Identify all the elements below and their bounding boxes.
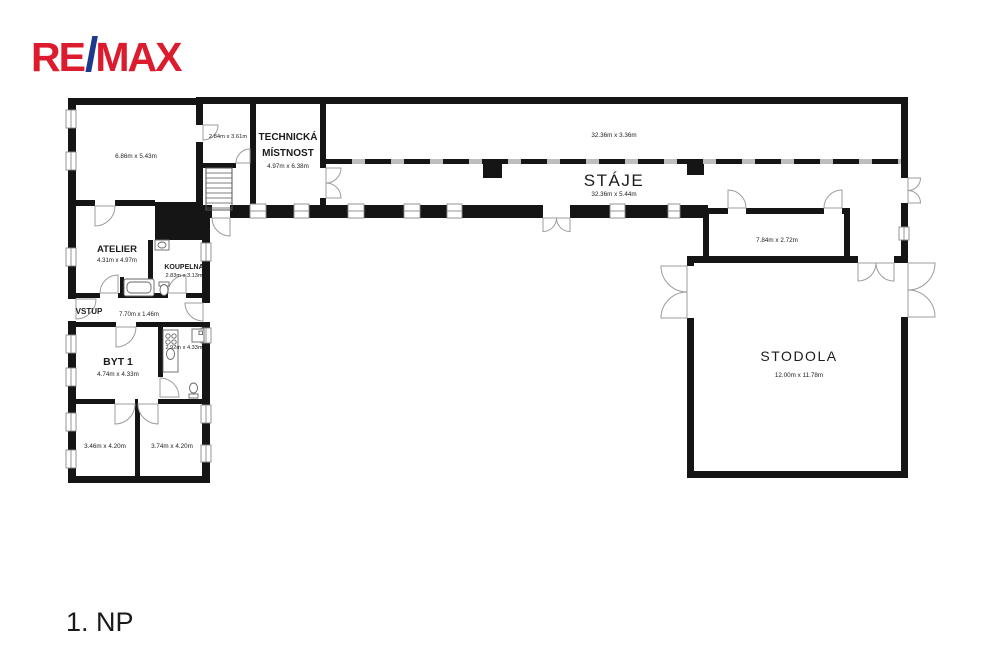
room-label-koupelna: KOUPELNA: [164, 264, 203, 271]
room-label-stodola: STODOLA: [760, 348, 837, 364]
toilet-icon: [189, 394, 198, 398]
room-284-dims: 2.84m x 3.61m: [209, 134, 248, 140]
room-label-atelier: ATELIER: [97, 244, 137, 255]
room-374-dims: 3.74m x 4.20m: [151, 443, 193, 450]
room-label-technicka-2: MÍSTNOST: [262, 146, 314, 159]
room-686-dims: 6.86m x 5.43m: [115, 153, 157, 160]
room-346-dims: 3.46m x 4.20m: [84, 443, 126, 450]
walls: [68, 97, 908, 483]
floor-plan: 6.86m x 5.43m ATELIER 4.31m x 4.97m KOUP…: [0, 0, 1000, 667]
room-label-technicka-1: TECHNICKÁ: [259, 130, 318, 143]
room-label-byt1: BYT 1: [103, 356, 133, 368]
room-label-vstup: VSTUP: [76, 307, 103, 316]
room-label-staje: STÁJE: [584, 171, 644, 190]
room-technicka-dims: 4.97m x 6.38m: [267, 163, 309, 170]
room-vstup-dims: 7.70m x 1.46m: [119, 312, 159, 318]
staircase: [206, 168, 232, 210]
room-koupelna-dims: 2.83m x 3.13m: [166, 273, 203, 279]
room-kitchen-dims: 2.92m x 4.33m: [166, 345, 203, 351]
room-784-dims: 7.84m x 2.72m: [756, 237, 798, 244]
floorplan-page: RE / MAX: [0, 0, 1000, 667]
room-staje-dims: 32.36m x 5.44m: [591, 191, 636, 198]
room-strip-dims: 32.36m x 3.36m: [591, 132, 636, 139]
floor-label: 1. NP: [66, 607, 134, 638]
room-atelier-dims: 4.31m x 4.97m: [97, 258, 137, 264]
room-byt1-dims: 4.74m x 4.33m: [97, 371, 139, 378]
room-stodola-dims: 12.00m x 11.78m: [775, 372, 823, 379]
